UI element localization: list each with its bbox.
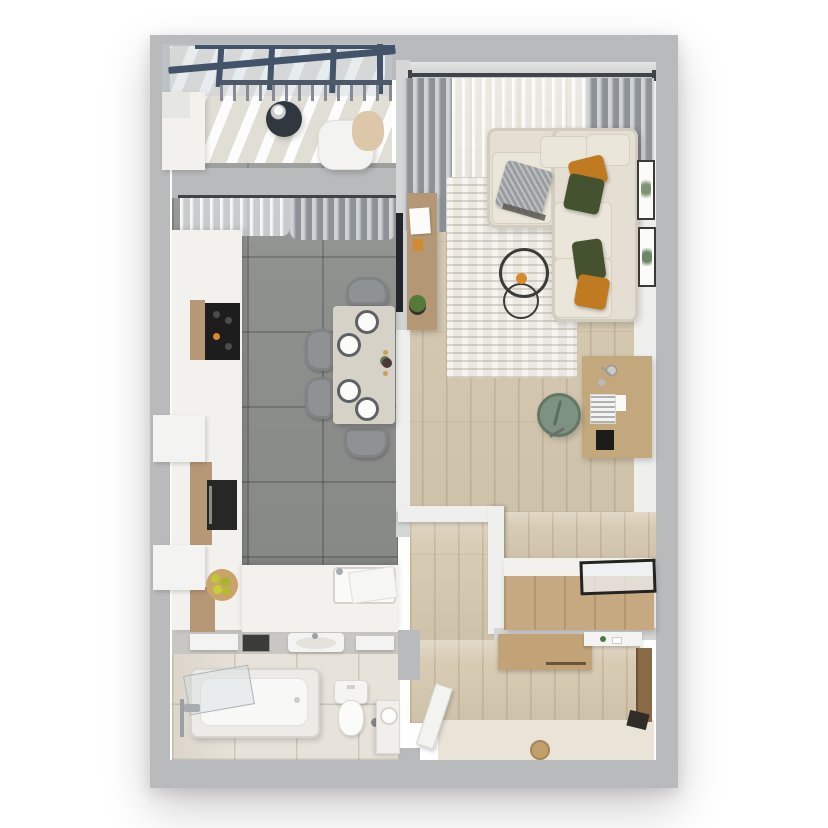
frame-art bbox=[642, 244, 652, 270]
tub-drain bbox=[294, 697, 300, 703]
frame-art bbox=[641, 176, 651, 202]
basin-faucet bbox=[312, 633, 318, 639]
wall-bath-entry-lower bbox=[398, 748, 420, 764]
cooktop-burner bbox=[213, 311, 220, 318]
coffee-table-small bbox=[503, 283, 539, 319]
niche-floor bbox=[504, 512, 656, 562]
fruit bbox=[213, 585, 222, 594]
oven-handle bbox=[209, 486, 212, 524]
wall-right bbox=[656, 35, 678, 788]
wardrobe-cabinet bbox=[498, 634, 592, 670]
dish-rack bbox=[348, 566, 398, 604]
bath-mirror bbox=[242, 634, 270, 652]
bath-shelf bbox=[356, 636, 394, 650]
fruit-board bbox=[206, 569, 238, 601]
table-decor-orange bbox=[516, 273, 527, 284]
wall-pilaster bbox=[153, 415, 205, 462]
candle bbox=[383, 371, 388, 376]
wall-bath-entry-upper bbox=[398, 630, 420, 680]
built-in-oven bbox=[207, 480, 237, 530]
toilet-bowl bbox=[338, 700, 364, 736]
dining-table bbox=[333, 306, 395, 424]
laptop bbox=[409, 207, 431, 234]
sink-faucet bbox=[336, 568, 343, 575]
tv-console bbox=[407, 193, 437, 330]
dining-chair bbox=[346, 277, 388, 305]
bath-shelf bbox=[190, 634, 238, 650]
wash-basin bbox=[288, 633, 344, 652]
bath-faucet bbox=[184, 704, 200, 712]
plate bbox=[340, 336, 358, 354]
desk-cup bbox=[598, 379, 605, 386]
cooktop-burner bbox=[213, 333, 220, 340]
kitchen-gray-drape bbox=[290, 198, 396, 240]
wall-kitchen-living-lower bbox=[396, 330, 410, 512]
cooktop-burner bbox=[225, 317, 232, 324]
wall-frame bbox=[637, 160, 655, 220]
wall-tv bbox=[396, 213, 403, 312]
balcony-cup bbox=[274, 106, 283, 115]
apartment-plan bbox=[150, 35, 678, 788]
fruit bbox=[221, 577, 230, 586]
orange-pillow bbox=[573, 273, 610, 310]
shelf-plant bbox=[600, 636, 606, 642]
note-paper bbox=[616, 395, 626, 411]
wall-bottom bbox=[150, 760, 678, 788]
fruit bbox=[222, 587, 230, 595]
wall-balcony-kitchen bbox=[172, 168, 398, 198]
wall-frame bbox=[638, 227, 656, 287]
dining-chair bbox=[305, 377, 333, 419]
chair-seam bbox=[553, 400, 562, 426]
floor-drain bbox=[530, 740, 550, 760]
towel-roll bbox=[380, 707, 398, 725]
console-decor-orange bbox=[413, 239, 423, 251]
storage-bench bbox=[504, 558, 654, 630]
floor-plan-canvas bbox=[0, 0, 828, 828]
cutting-board bbox=[190, 300, 205, 360]
fruit bbox=[211, 574, 220, 583]
desk bbox=[582, 356, 652, 458]
roof-frame-top bbox=[195, 45, 395, 49]
plate bbox=[358, 313, 376, 331]
plate bbox=[358, 400, 376, 418]
candle bbox=[383, 350, 388, 355]
wall-pilaster bbox=[153, 545, 205, 590]
flower-vase bbox=[382, 358, 392, 368]
shelf-decor bbox=[612, 637, 622, 644]
cooktop-burner bbox=[225, 343, 232, 350]
living-curtain-rod bbox=[412, 73, 654, 77]
wall-hallway-b bbox=[488, 506, 504, 634]
balcony-balusters bbox=[220, 85, 392, 101]
mouse-pad bbox=[596, 430, 614, 450]
green-pillow bbox=[563, 173, 606, 216]
balcony-blanket bbox=[352, 111, 384, 151]
dining-chair bbox=[305, 329, 333, 371]
shower-bar bbox=[180, 699, 184, 737]
balcony-cabinet-step bbox=[162, 92, 190, 118]
wall-top-living bbox=[385, 35, 678, 62]
potted-plant bbox=[409, 295, 426, 312]
plate bbox=[340, 382, 358, 400]
cooktop bbox=[205, 303, 240, 360]
balcony-round-table bbox=[266, 101, 302, 137]
dining-chair bbox=[344, 428, 388, 458]
keyboard bbox=[590, 394, 616, 424]
glass-display-top bbox=[579, 559, 656, 596]
flush-button bbox=[347, 685, 355, 689]
entry-shelf bbox=[584, 632, 642, 646]
wardrobe-handle bbox=[546, 662, 586, 665]
corner-unit bbox=[376, 700, 400, 754]
